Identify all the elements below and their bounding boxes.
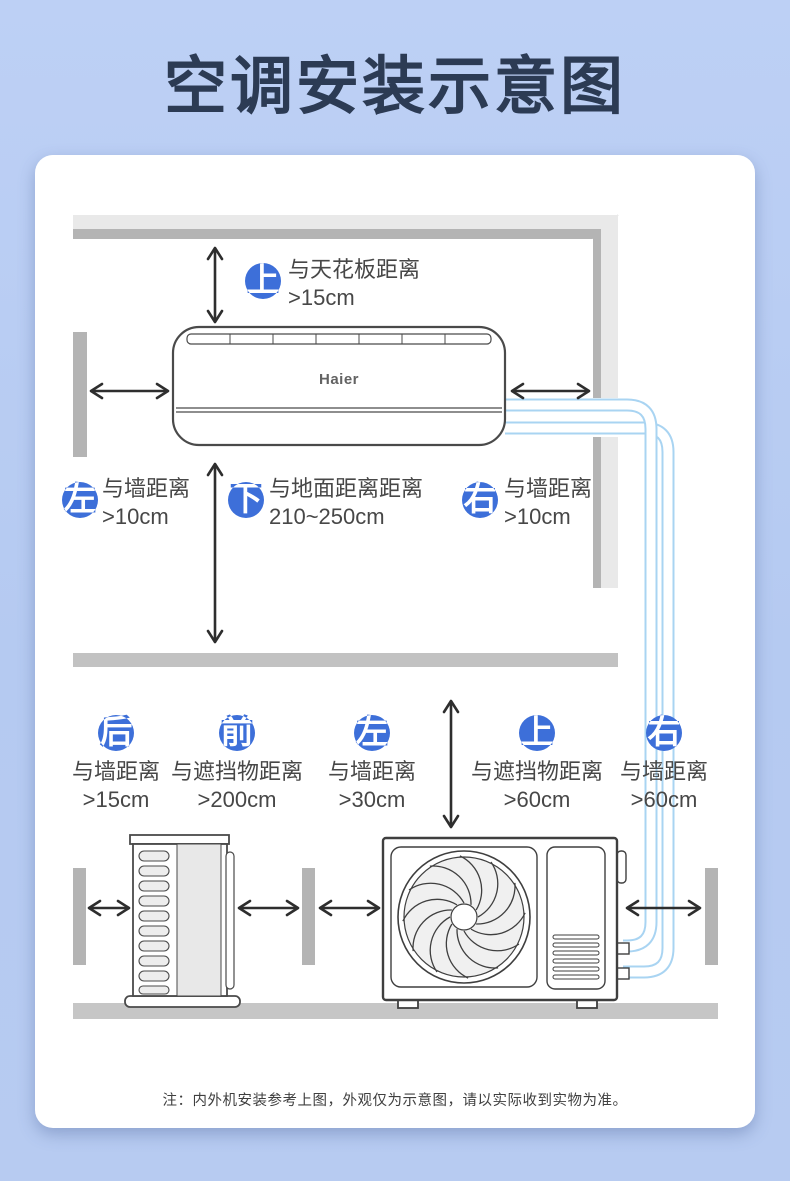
arrow-outdoor-back-clearance xyxy=(89,901,129,915)
clearance-label-indoor-top: 与天花板距离 >15cm xyxy=(288,256,420,312)
clearance-label-outdoor-right: 与墙距离 >60cm xyxy=(579,758,749,814)
direction-badge-indoor-left: 左 左 xyxy=(58,478,102,522)
outdoor-unit-front-view xyxy=(383,838,629,1008)
page-title: 空调安装示意图 xyxy=(0,36,790,127)
arrow-left-wall-clearance xyxy=(91,384,168,398)
clearance-label-indoor-bottom: 与地面距离距离 210~250cm xyxy=(269,475,423,531)
indoor-unit-brand-logo: Haier xyxy=(173,371,505,388)
upper-floor xyxy=(73,653,618,667)
clearance-label-indoor-left: 与墙距离 >10cm xyxy=(102,475,190,531)
direction-badge-indoor-bottom: 下 下 xyxy=(224,478,268,522)
direction-badge-outdoor-right: 右 右 xyxy=(642,711,686,755)
outdoor-unit-side-view xyxy=(125,835,240,1007)
clearance-label-indoor-right: 与墙距离 >10cm xyxy=(504,475,592,531)
page-background: 空调安装示意图 xyxy=(0,0,790,1181)
direction-badge-outdoor-top: 上 上 xyxy=(515,711,559,755)
arrow-outdoor-front-clearance xyxy=(239,901,298,915)
direction-badge-indoor-top: 上 上 xyxy=(241,259,285,303)
clearance-label-outdoor-left: 与墙距离 >30cm xyxy=(287,758,457,814)
arrow-outdoor-left-clearance xyxy=(320,901,379,915)
arrow-ceiling-clearance xyxy=(208,248,222,322)
direction-badge-outdoor-left: 左 左 xyxy=(350,711,394,755)
direction-badge-outdoor-back: 后 后 xyxy=(94,711,138,755)
arrow-floor-clearance xyxy=(208,464,222,642)
outdoor-wall-middle xyxy=(302,868,315,965)
left-wall xyxy=(73,332,87,457)
arrow-right-wall-clearance xyxy=(512,384,589,398)
install-diagram-card: Haier 上 上 与天花板距离 >15cm 左 左 与墙距离 >10cm 下 … xyxy=(35,155,755,1128)
ceiling xyxy=(73,215,618,239)
right-wall-upper xyxy=(593,215,618,398)
outdoor-wall-right xyxy=(705,868,718,965)
right-wall-lower xyxy=(593,437,618,588)
direction-badge-indoor-right: 右 右 xyxy=(458,478,502,522)
direction-badge-outdoor-front: 前 前 xyxy=(215,711,259,755)
fan-icon xyxy=(398,851,530,983)
note-text: 注：内外机安装参考上图，外观仅为示意图，请以实际收到实物为准。 xyxy=(35,1089,755,1110)
outdoor-wall-left xyxy=(73,868,86,965)
